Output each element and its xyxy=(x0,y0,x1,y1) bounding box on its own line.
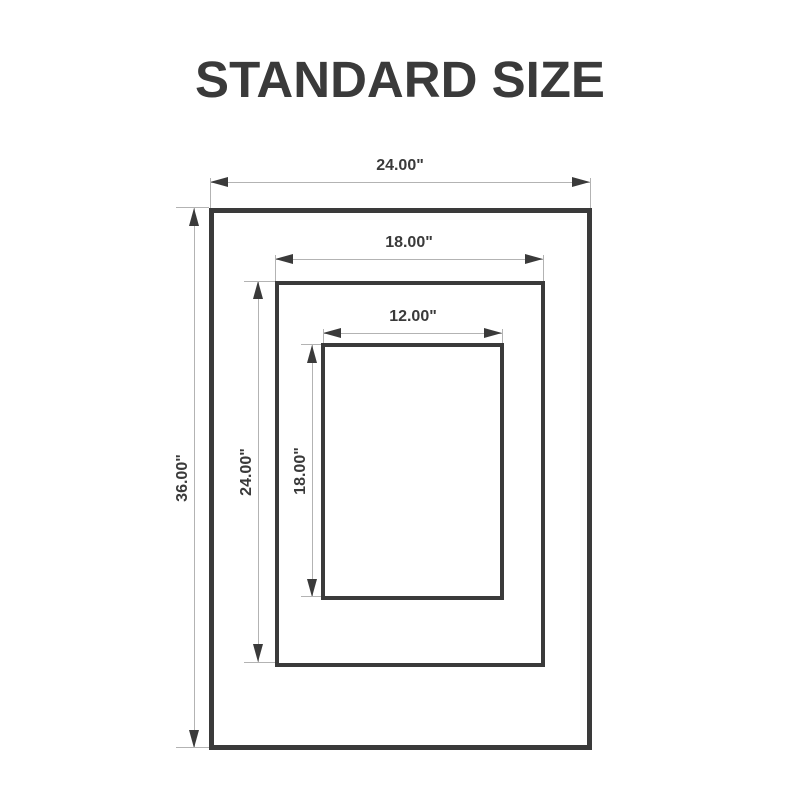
inner-width-dimension-line xyxy=(323,333,502,334)
page-title: STANDARD SIZE xyxy=(0,50,800,110)
extension-line xyxy=(244,281,275,282)
arrowhead-left-icon xyxy=(323,328,341,338)
arrowhead-up-icon xyxy=(189,208,199,226)
arrowhead-down-icon xyxy=(307,579,317,597)
extension-line xyxy=(543,255,544,281)
arrowhead-down-icon xyxy=(253,644,263,662)
outer-width-label: 24.00" xyxy=(350,156,450,176)
extension-line xyxy=(590,178,591,208)
arrowhead-left-icon xyxy=(210,177,228,187)
arrowhead-right-icon xyxy=(484,328,502,338)
middle-width-dimension-line xyxy=(275,259,543,260)
extension-line xyxy=(323,329,324,343)
arrowhead-left-icon xyxy=(275,254,293,264)
extension-line xyxy=(210,178,211,208)
inner-width-label: 12.00" xyxy=(363,307,463,327)
middle-height-label: 24.00" xyxy=(237,432,257,512)
arrowhead-down-icon xyxy=(189,730,199,748)
extension-line xyxy=(502,329,503,343)
middle-height-dimension-line xyxy=(258,281,259,662)
extension-line xyxy=(301,344,321,345)
extension-line xyxy=(301,596,321,597)
arrowhead-up-icon xyxy=(253,281,263,299)
arrowhead-up-icon xyxy=(307,345,317,363)
inner-frame-rect xyxy=(321,343,504,600)
arrowhead-right-icon xyxy=(572,177,590,187)
extension-line xyxy=(176,747,209,748)
outer-height-dimension-line xyxy=(194,208,195,748)
arrowhead-right-icon xyxy=(525,254,543,264)
inner-height-dimension-line xyxy=(312,345,313,597)
extension-line xyxy=(275,255,276,281)
middle-width-label: 18.00" xyxy=(359,233,459,253)
inner-height-label: 18.00" xyxy=(291,431,311,511)
extension-line xyxy=(176,207,209,208)
extension-line xyxy=(244,662,275,663)
outer-width-dimension-line xyxy=(210,182,590,183)
outer-height-label: 36.00" xyxy=(173,438,193,518)
